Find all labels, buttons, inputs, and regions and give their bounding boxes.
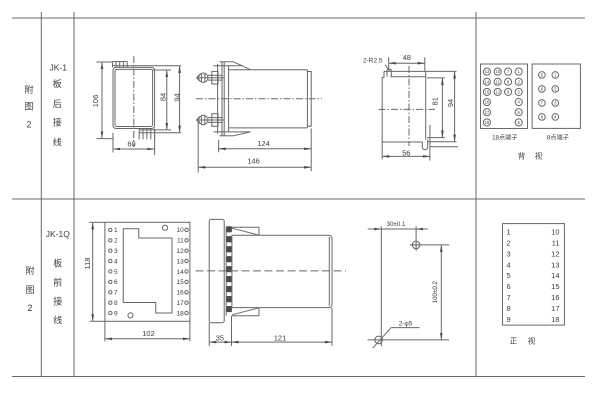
svg-text:2: 2 [26, 120, 31, 130]
svg-text:1: 1 [518, 69, 521, 74]
svg-text:线: 线 [53, 137, 62, 148]
svg-text:17: 17 [551, 304, 559, 313]
svg-text:5: 5 [507, 271, 511, 280]
svg-text:2-φ5: 2-φ5 [399, 321, 413, 328]
svg-text:3: 3 [554, 101, 557, 106]
svg-text:60: 60 [127, 140, 135, 149]
svg-text:8: 8 [507, 79, 510, 84]
svg-text:正: 正 [510, 336, 518, 345]
svg-text:14: 14 [485, 79, 490, 84]
svg-text:7: 7 [507, 293, 511, 302]
svg-text:6: 6 [518, 120, 521, 125]
svg-text:6: 6 [507, 282, 511, 291]
svg-text:11: 11 [552, 238, 560, 247]
svg-text:12: 12 [495, 90, 500, 95]
svg-text:12: 12 [176, 248, 184, 255]
svg-text:8: 8 [541, 115, 544, 120]
svg-text:13: 13 [176, 258, 184, 265]
svg-text:16: 16 [551, 293, 559, 302]
svg-text:附: 附 [25, 265, 34, 276]
svg-text:16: 16 [176, 290, 184, 297]
svg-text:10: 10 [176, 227, 184, 234]
svg-text:图: 图 [25, 285, 34, 295]
svg-text:附: 附 [24, 84, 33, 95]
svg-text:视: 视 [535, 150, 543, 160]
svg-text:13: 13 [551, 260, 559, 269]
svg-text:94: 94 [446, 99, 455, 107]
svg-text:18点端子: 18点端子 [492, 134, 517, 142]
svg-text:48: 48 [403, 53, 411, 62]
svg-text:121: 121 [274, 333, 287, 342]
svg-text:106: 106 [91, 95, 100, 108]
svg-text:118: 118 [83, 258, 92, 270]
svg-text:1: 1 [554, 73, 557, 78]
svg-text:4: 4 [518, 100, 521, 105]
svg-text:7: 7 [507, 69, 510, 74]
svg-text:15: 15 [176, 279, 184, 286]
svg-text:146: 146 [247, 156, 260, 165]
svg-text:9: 9 [114, 310, 118, 317]
svg-text:3: 3 [507, 249, 511, 258]
svg-text:视: 视 [528, 335, 536, 345]
svg-text:接: 接 [53, 117, 62, 128]
svg-text:56: 56 [402, 148, 410, 157]
svg-text:5: 5 [541, 73, 544, 78]
svg-text:1: 1 [507, 228, 511, 237]
svg-text:18: 18 [176, 310, 184, 317]
svg-text:前: 前 [53, 277, 62, 288]
svg-text:2: 2 [554, 87, 557, 92]
svg-text:板: 板 [53, 78, 62, 89]
svg-text:81: 81 [431, 97, 440, 105]
svg-text:14: 14 [551, 271, 559, 280]
svg-text:2: 2 [518, 79, 521, 84]
svg-text:板: 板 [53, 258, 62, 269]
svg-text:84: 84 [158, 93, 167, 101]
svg-text:4: 4 [507, 260, 511, 269]
svg-text:后: 后 [53, 99, 62, 109]
svg-text:2-R2.5: 2-R2.5 [363, 58, 383, 65]
svg-text:12: 12 [551, 249, 559, 258]
svg-text:13: 13 [485, 69, 490, 74]
svg-text:94: 94 [172, 93, 181, 101]
svg-text:102: 102 [142, 329, 155, 338]
svg-text:100±0.2: 100±0.2 [432, 280, 439, 303]
svg-text:3: 3 [518, 90, 521, 95]
svg-text:16: 16 [485, 100, 490, 105]
svg-text:15: 15 [485, 90, 490, 95]
svg-text:接: 接 [53, 296, 62, 307]
svg-text:124: 124 [257, 139, 270, 148]
svg-text:5: 5 [518, 110, 521, 115]
svg-text:30±0.1: 30±0.1 [387, 221, 406, 228]
svg-text:8点端子: 8点端子 [547, 134, 569, 142]
svg-text:线: 线 [53, 315, 62, 326]
svg-text:15: 15 [551, 282, 559, 291]
svg-text:18: 18 [485, 120, 490, 125]
svg-text:9: 9 [507, 315, 511, 324]
svg-text:图: 图 [24, 101, 33, 111]
svg-text:5: 5 [114, 269, 118, 276]
svg-text:35: 35 [216, 333, 224, 342]
svg-text:17: 17 [176, 300, 184, 307]
svg-text:18: 18 [551, 315, 559, 324]
svg-text:10: 10 [551, 228, 559, 237]
svg-text:8: 8 [507, 304, 511, 313]
svg-text:4: 4 [114, 258, 118, 265]
svg-text:8: 8 [114, 300, 118, 307]
svg-text:2: 2 [507, 238, 511, 247]
svg-text:4: 4 [554, 115, 557, 120]
svg-text:1: 1 [114, 227, 118, 234]
svg-text:11: 11 [496, 79, 501, 84]
svg-text:3: 3 [114, 248, 118, 255]
svg-text:11: 11 [177, 238, 184, 245]
svg-text:14: 14 [176, 269, 184, 276]
svg-text:背: 背 [518, 150, 526, 160]
svg-text:7: 7 [114, 290, 118, 297]
svg-text:17: 17 [485, 110, 490, 115]
svg-text:JK-1: JK-1 [50, 63, 68, 73]
svg-text:6: 6 [541, 87, 544, 92]
svg-text:JK-1Q: JK-1Q [46, 229, 70, 239]
svg-text:10: 10 [495, 69, 500, 74]
svg-text:2: 2 [27, 303, 32, 313]
svg-text:7: 7 [541, 101, 544, 106]
svg-text:9: 9 [507, 90, 510, 95]
svg-text:2: 2 [114, 238, 118, 245]
svg-text:6: 6 [114, 279, 118, 286]
